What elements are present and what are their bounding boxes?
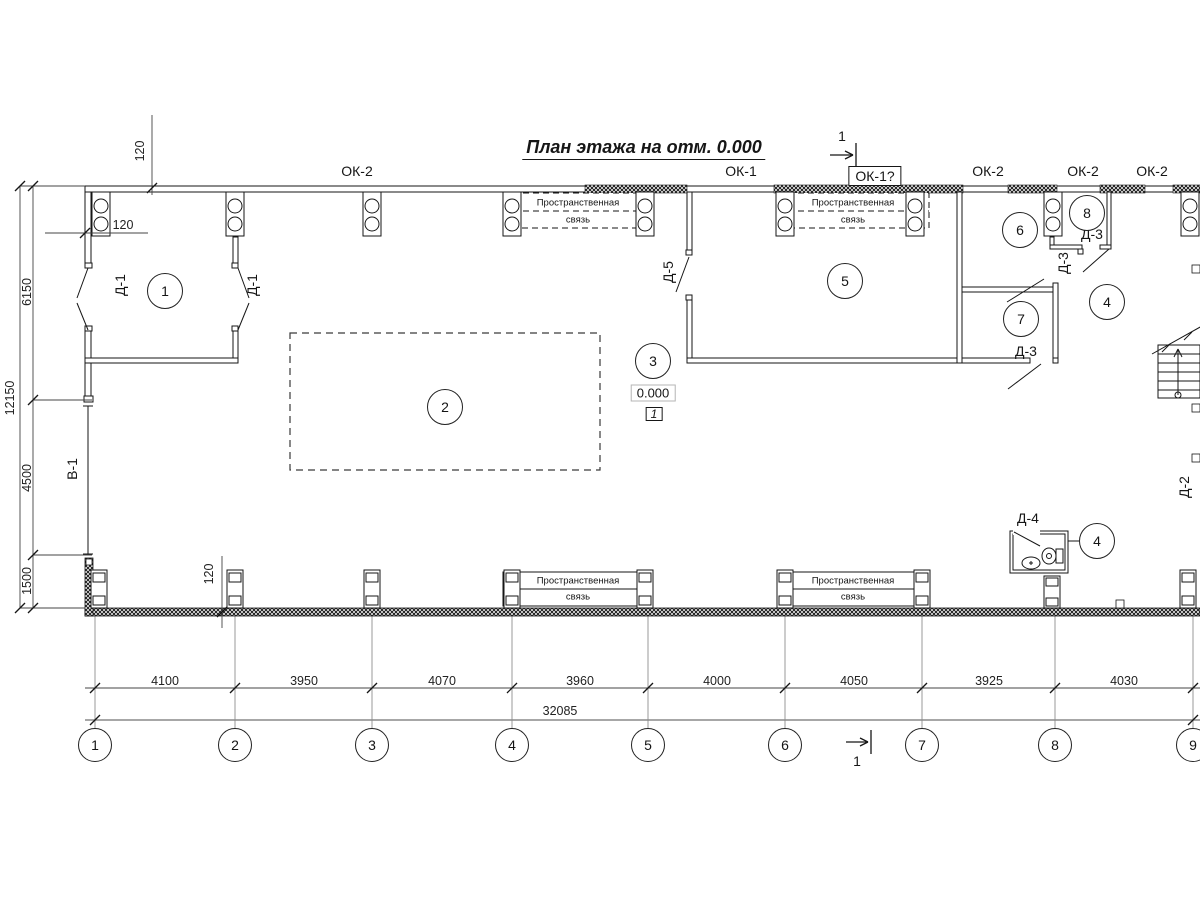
dim-bay-2: 3950 [290, 675, 318, 688]
axis-circle-2: 2 [218, 728, 252, 762]
dim-bay-7: 3925 [975, 675, 1003, 688]
toilet-room [1010, 528, 1080, 573]
window-label-ok2-4: ОК-2 [1136, 164, 1168, 178]
room-circle-4a: 4 [1089, 284, 1125, 320]
floor-plan-drawing: План этажа на отм. 0.000 ОК-2 ОК-1 ОК-1?… [0, 0, 1200, 900]
window-label-ok2-2: ОК-2 [972, 164, 1004, 178]
room-circle-3: 3 [635, 343, 671, 379]
dim-total-width: 32085 [543, 705, 578, 718]
window-label-ok1: ОК-1 [725, 164, 757, 178]
section-mark-lines [830, 143, 871, 754]
section-mark-bottom: 1 [853, 754, 861, 768]
columns-bottom [91, 570, 1196, 608]
window-label-ok2-3: ОК-2 [1067, 164, 1099, 178]
door-label-d5: Д-5 [661, 261, 675, 283]
door-label-d2: Д-2 [1177, 476, 1191, 498]
plan-linework [0, 0, 1200, 900]
room-circle-8: 8 [1069, 195, 1105, 231]
stairs-icon [1152, 326, 1200, 398]
axis-circle-6: 6 [768, 728, 802, 762]
door-label-d3-room7: Д-3 [1015, 344, 1037, 358]
section-mark-top: 1 [838, 129, 846, 143]
axis-circle-5: 5 [631, 728, 665, 762]
axis-circle-1: 1 [78, 728, 112, 762]
axis-circle-8: 8 [1038, 728, 1072, 762]
axis-guide-lines [95, 616, 1193, 728]
door-label-d4: Д-4 [1017, 511, 1039, 525]
room-circle-1: 1 [147, 273, 183, 309]
dim-bay-3: 4070 [428, 675, 456, 688]
room-circle-7: 7 [1003, 301, 1039, 337]
dim-bay-5: 4000 [703, 675, 731, 688]
dim-offset-bottom: 120 [203, 564, 216, 585]
dim-left-1: 6150 [21, 278, 34, 306]
door-label-d3-mid: Д-3 [1056, 252, 1070, 274]
axis-circle-7: 7 [905, 728, 939, 762]
brace-label: Пространственная [812, 198, 895, 208]
dimension-ticks [15, 181, 1198, 725]
dim-left-2: 4500 [21, 464, 34, 492]
dim-bay-4: 3960 [566, 675, 594, 688]
room-circle-5: 5 [827, 263, 863, 299]
door-label-d1-left: Д-1 [113, 274, 127, 296]
dim-left-3: 1500 [21, 567, 34, 595]
brace-label: Пространственная [537, 576, 620, 586]
brace-label: Пространственная [812, 576, 895, 586]
dim-offset-top: 120 [134, 141, 147, 162]
brace-label: связь [841, 215, 865, 225]
page-title: План этажа на отм. 0.000 [522, 138, 765, 160]
brace-label: связь [841, 592, 865, 602]
axis-circle-4: 4 [495, 728, 529, 762]
room-circle-6: 6 [1002, 212, 1038, 248]
axis-circle-3: 3 [355, 728, 389, 762]
door-swings [77, 249, 1109, 554]
brace-boxes [503, 193, 929, 606]
room-circle-2: 2 [427, 389, 463, 425]
brace-label: связь [566, 592, 590, 602]
gate-label-v1: В-1 [65, 458, 79, 480]
elevation-value: 0.000 [631, 385, 676, 402]
dim-bay-8: 4030 [1110, 675, 1138, 688]
dim-offset-left: 120 [113, 219, 134, 232]
node-marker: 1 [646, 407, 663, 421]
room-circle-4b: 4 [1079, 523, 1115, 559]
dim-left-total: 12150 [4, 381, 17, 416]
window-label-ok1-query: ОК-1? [848, 166, 901, 186]
brace-label: связь [566, 215, 590, 225]
brace-label: Пространственная [537, 198, 620, 208]
window-label-ok2-1: ОК-2 [341, 164, 373, 178]
dim-bay-6: 4050 [840, 675, 868, 688]
door-label-d1-right: Д-1 [245, 274, 259, 296]
dim-bay-1: 4100 [151, 675, 179, 688]
